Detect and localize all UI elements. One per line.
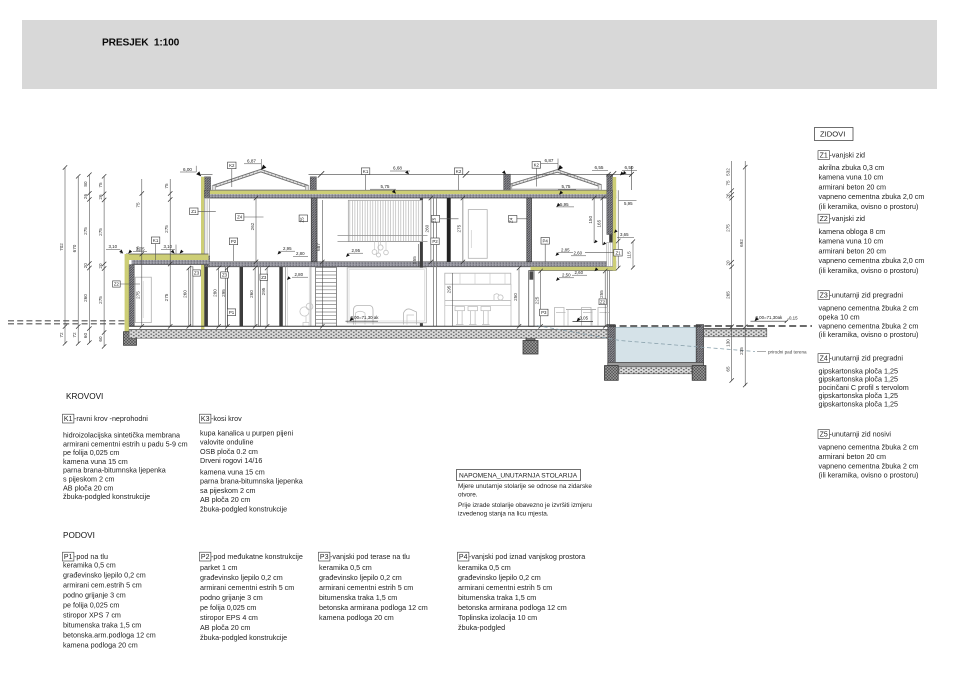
svg-text:pe folija 0,025 cm: pe folija 0,025 cm <box>63 448 119 457</box>
svg-text:stiropor XPS 7 cm: stiropor XPS 7 cm <box>63 611 121 620</box>
svg-text:60: 60 <box>98 336 103 342</box>
svg-text:260: 260 <box>83 294 88 302</box>
svg-text:0,00=71,30ak: 0,00=71,30ak <box>756 315 784 320</box>
svg-text:275: 275 <box>136 291 141 299</box>
svg-text:armirani beton 20 cm: armirani beton 20 cm <box>819 452 887 461</box>
svg-text:keramika 0,5 cm: keramika 0,5 cm <box>458 563 511 572</box>
svg-text:0,00=71,30 ak: 0,00=71,30 ak <box>351 315 380 320</box>
svg-text:5,75: 5,75 <box>562 184 571 189</box>
svg-text:KROVOVI: KROVOVI <box>66 392 103 401</box>
svg-text:Mjere unutarnje stolarije se o: Mjere unutarnje stolarije se odnose na z… <box>458 483 592 490</box>
svg-text:građevinsko ljepilo 0,2 cm: građevinsko ljepilo 0,2 cm <box>200 573 283 582</box>
svg-text:-vanjski pod iznad vanjskog pr: -vanjski pod iznad vanjskog prostora <box>469 552 585 561</box>
svg-text:žbuka-podgled konstrukcije: žbuka-podgled konstrukcije <box>63 492 150 501</box>
svg-text:(ili keramika, ovisno o prosto: (ili keramika, ovisno o prostoru) <box>819 330 919 339</box>
svg-text:PRESJEK 1:100: PRESJEK 1:100 <box>102 38 180 49</box>
svg-text:s pijeskom 2 cm: s pijeskom 2 cm <box>63 475 115 484</box>
svg-text:-vanjski zid: -vanjski zid <box>830 214 866 223</box>
svg-text:5,75: 5,75 <box>381 184 390 189</box>
svg-text:260: 260 <box>425 224 430 232</box>
svg-text:265: 265 <box>726 291 731 299</box>
svg-text:20: 20 <box>98 263 103 269</box>
svg-text:armirani beton 20 cm: armirani beton 20 cm <box>819 182 887 191</box>
svg-text:3,65: 3,65 <box>620 232 629 237</box>
svg-text:2,95: 2,95 <box>283 246 292 251</box>
svg-text:žbuka-podgled konstrukcije: žbuka-podgled konstrukcije <box>200 633 287 642</box>
svg-text:26: 26 <box>83 194 88 200</box>
svg-text:vapneno cementna žbuka 2 cm: vapneno cementna žbuka 2 cm <box>819 443 919 452</box>
svg-text:bitumenska traka 1,5 cm: bitumenska traka 1,5 cm <box>319 593 397 602</box>
svg-text:275: 275 <box>83 227 88 235</box>
svg-text:6,68: 6,68 <box>393 166 402 171</box>
svg-text:vapneno cementna zbuka 2,0 cm: vapneno cementna zbuka 2,0 cm <box>819 256 925 265</box>
svg-text:Z5: Z5 <box>432 217 437 223</box>
svg-text:parna brana-bitumnska ljepenka: parna brana-bitumnska ljepenka <box>200 477 303 486</box>
svg-text:vapneno cementna žbuka 2 cm: vapneno cementna žbuka 2 cm <box>819 321 919 330</box>
svg-text:2,80: 2,80 <box>296 251 305 256</box>
svg-text:2,60: 2,60 <box>575 270 584 275</box>
svg-text:Z3: Z3 <box>820 293 828 300</box>
svg-text:parna brana-bitumnska ljepenka: parna brana-bitumnska ljepenka <box>63 466 166 475</box>
svg-text:3,10: 3,10 <box>164 244 173 249</box>
svg-text:Z3: Z3 <box>261 275 267 280</box>
svg-text:K1: K1 <box>64 416 73 423</box>
svg-text:Z5: Z5 <box>299 217 304 223</box>
svg-text:60: 60 <box>83 333 88 339</box>
svg-text:pe folija 0,025 cm: pe folija 0,025 cm <box>63 601 119 610</box>
svg-text:75: 75 <box>726 180 731 186</box>
svg-text:687: 687 <box>316 243 321 251</box>
svg-text:6,87: 6,87 <box>247 158 256 163</box>
svg-text:532: 532 <box>726 168 731 176</box>
svg-text:Z1: Z1 <box>820 153 828 160</box>
svg-text:-pod međukatne konstrukcije: -pod međukatne konstrukcije <box>211 552 303 561</box>
svg-text:sa pijeskom 2 cm: sa pijeskom 2 cm <box>200 486 256 495</box>
svg-text:295: 295 <box>261 287 266 295</box>
svg-text:bitumenska traka 1,5 cm: bitumenska traka 1,5 cm <box>458 593 536 602</box>
svg-text:stiropor EPS 4 cm: stiropor EPS 4 cm <box>200 613 258 622</box>
svg-text:Z1: Z1 <box>615 250 621 255</box>
svg-text:AB ploča 20 cm: AB ploča 20 cm <box>200 495 250 504</box>
svg-text:5,95: 5,95 <box>560 202 569 207</box>
svg-text:275: 275 <box>98 296 103 304</box>
svg-text:225: 225 <box>534 296 539 304</box>
svg-text:AB ploča 20 cm: AB ploča 20 cm <box>63 483 113 492</box>
svg-text:Z2: Z2 <box>820 216 828 223</box>
svg-text:armirani cem.estrih 5 cm: armirani cem.estrih 5 cm <box>63 581 142 590</box>
svg-text:P2: P2 <box>432 239 438 244</box>
svg-text:130: 130 <box>726 339 731 347</box>
svg-text:P3: P3 <box>541 310 547 315</box>
svg-text:K2: K2 <box>456 169 462 174</box>
svg-text:AB ploča 20 cm: AB ploča 20 cm <box>200 623 250 632</box>
svg-text:betonska armirana podloga 12 c: betonska armirana podloga 12 cm <box>319 603 428 612</box>
svg-text:hidroizolacijska sintetička me: hidroizolacijska sintetička membrana <box>63 431 180 440</box>
svg-text:275: 275 <box>164 293 169 301</box>
svg-text:(ili keramika, ovisno o prosto: (ili keramika, ovisno o prostoru) <box>819 202 919 211</box>
svg-text:prirodni pad terena: prirodni pad terena <box>768 350 807 355</box>
svg-text:K2: K2 <box>229 163 235 168</box>
svg-text:kupa kanalica u purpen pijeni: kupa kanalica u purpen pijeni <box>200 429 294 438</box>
svg-text:Z3: Z3 <box>194 271 200 276</box>
svg-text:80: 80 <box>83 181 88 187</box>
svg-text:vapneno cementna žbuka 2 cm: vapneno cementna žbuka 2 cm <box>819 461 919 470</box>
svg-text:72: 72 <box>72 332 77 338</box>
svg-text:kamena vuna 10 cm: kamena vuna 10 cm <box>819 173 884 182</box>
svg-text:275: 275 <box>457 224 462 232</box>
svg-text:-vanjski pod terase na tlu: -vanjski pod terase na tlu <box>330 552 410 561</box>
svg-text:295: 295 <box>221 289 226 297</box>
svg-text:2,80: 2,80 <box>295 272 304 277</box>
svg-text:-unutarnji zid pregradni: -unutarnji zid pregradni <box>830 291 904 300</box>
svg-text:armirani cementni estrih 5 cm: armirani cementni estrih 5 cm <box>319 583 413 592</box>
svg-text:ZIDOVI: ZIDOVI <box>820 130 845 139</box>
svg-text:otvore.: otvore. <box>458 492 478 499</box>
svg-text:6,55: 6,55 <box>595 165 604 170</box>
svg-text:692: 692 <box>739 239 744 247</box>
svg-text:72: 72 <box>59 332 64 338</box>
svg-text:6,87: 6,87 <box>545 158 554 163</box>
svg-text:K3: K3 <box>201 416 210 423</box>
svg-text:kamena podloga 20 cm: kamena podloga 20 cm <box>63 641 138 650</box>
svg-text:255: 255 <box>599 290 604 298</box>
svg-text:građevinsko ljepilo 0,2 cm: građevinsko ljepilo 0,2 cm <box>458 573 541 582</box>
svg-text:275: 275 <box>726 224 731 232</box>
svg-text:kamena vuna 10 cm: kamena vuna 10 cm <box>819 237 884 246</box>
svg-text:3,10: 3,10 <box>109 244 118 249</box>
svg-text:-unutarnji zid nosivi: -unutarnji zid nosivi <box>830 430 892 439</box>
svg-text:Z1: Z1 <box>191 209 197 214</box>
svg-text:keramika 0,5 cm: keramika 0,5 cm <box>319 563 372 572</box>
svg-text:kamena podloga 20 cm: kamena podloga 20 cm <box>319 613 394 622</box>
svg-text:165: 165 <box>597 219 602 227</box>
svg-text:K1: K1 <box>363 169 369 174</box>
svg-text:-ravni krov -neprohodni: -ravni krov -neprohodni <box>74 414 148 423</box>
svg-text:parket 1 cm: parket 1 cm <box>200 563 238 572</box>
svg-text:2,85: 2,85 <box>561 247 570 252</box>
svg-text:280: 280 <box>212 289 217 297</box>
svg-text:armirani cementni estrih 5 cm: armirani cementni estrih 5 cm <box>458 583 552 592</box>
svg-text:2,95: 2,95 <box>352 248 361 253</box>
svg-text:6,50: 6,50 <box>625 165 634 170</box>
svg-text:betonska armirana podloga 12 c: betonska armirana podloga 12 cm <box>458 603 567 612</box>
svg-text:P3: P3 <box>320 554 329 561</box>
svg-text:opeka 10 cm: opeka 10 cm <box>819 312 860 321</box>
svg-text:pe folija 0,025 cm: pe folija 0,025 cm <box>200 603 256 612</box>
svg-text:3,05: 3,05 <box>136 246 145 251</box>
svg-text:Z5: Z5 <box>820 432 828 439</box>
svg-text:Z4: Z4 <box>237 215 243 220</box>
svg-text:Z4: Z4 <box>820 356 828 363</box>
svg-text:P2: P2 <box>231 239 237 244</box>
svg-text:akrilna zbuka 0,3 cm: akrilna zbuka 0,3 cm <box>819 163 885 172</box>
svg-text:izvedenog stanja na licu mjest: izvedenog stanja na licu mjesta. <box>458 511 549 518</box>
svg-text:kamena obloga 8 cm: kamena obloga 8 cm <box>819 227 886 236</box>
svg-text:295: 295 <box>446 285 451 293</box>
svg-text:-kosi krov: -kosi krov <box>211 414 242 423</box>
svg-text:-0,05: -0,05 <box>578 315 589 320</box>
svg-text:65: 65 <box>726 366 731 372</box>
svg-text:Z2: Z2 <box>600 300 606 305</box>
svg-text:670: 670 <box>72 244 77 252</box>
svg-text:262: 262 <box>250 222 255 230</box>
svg-text:PODOVI: PODOVI <box>63 531 95 540</box>
svg-text:keramika 0,5 cm: keramika 0,5 cm <box>63 561 116 570</box>
svg-text:kamena vuna 15 cm: kamena vuna 15 cm <box>200 468 265 477</box>
svg-text:-0,15: -0,15 <box>788 315 799 320</box>
svg-text:2,50: 2,50 <box>562 273 571 278</box>
svg-text:(ili keramika, ovisno o prosto: (ili keramika, ovisno o prostoru) <box>819 471 919 480</box>
svg-text:P4: P4 <box>543 239 549 244</box>
svg-text:75: 75 <box>164 183 169 189</box>
svg-text:OSB ploča 0.2 cm: OSB ploča 0.2 cm <box>200 447 258 456</box>
svg-text:Toplinska izolacija 10 cm: Toplinska izolacija 10 cm <box>458 613 537 622</box>
svg-text:702: 702 <box>59 243 64 251</box>
svg-text:građevinsko ljepilo 0,2 cm: građevinsko ljepilo 0,2 cm <box>63 571 146 580</box>
svg-text:valovite onduline: valovite onduline <box>200 438 254 447</box>
svg-text:Drveni rogovi 14/16: Drveni rogovi 14/16 <box>200 456 262 465</box>
svg-text:235: 235 <box>739 347 744 355</box>
svg-text:Z2: Z2 <box>114 282 120 287</box>
svg-text:26: 26 <box>98 194 103 200</box>
svg-text:260: 260 <box>249 290 254 298</box>
svg-text:građevinsko ljepilo 0,2 cm: građevinsko ljepilo 0,2 cm <box>319 573 402 582</box>
svg-text:(ili keramika, ovisno o prosto: (ili keramika, ovisno o prostoru) <box>819 266 919 275</box>
svg-text:250: 250 <box>513 293 518 301</box>
svg-text:armirani cementni estrih 5 cm: armirani cementni estrih 5 cm <box>200 583 294 592</box>
svg-text:75: 75 <box>136 202 141 208</box>
svg-text:5,95: 5,95 <box>624 201 633 206</box>
svg-text:K2: K2 <box>534 163 540 168</box>
svg-text:gipskartonska ploča 1,25: gipskartonska ploča 1,25 <box>819 399 899 408</box>
svg-text:-vanjski zid: -vanjski zid <box>830 151 866 160</box>
svg-text:Z3: Z3 <box>222 273 228 278</box>
svg-text:armirani cementni estrih u pad: armirani cementni estrih u padu 5-9 cm <box>63 439 188 448</box>
svg-text:podno grijanje 3 cm: podno grijanje 3 cm <box>200 593 263 602</box>
svg-text:Prije izrade stolarije obavezn: Prije izrade stolarije obavezno je izvrš… <box>458 502 592 509</box>
svg-text:260: 260 <box>183 290 188 298</box>
svg-text:armirani beton 20 cm: armirani beton 20 cm <box>819 246 887 255</box>
svg-text:275: 275 <box>164 225 169 233</box>
svg-text:2,60: 2,60 <box>574 251 583 256</box>
svg-text:Z4: Z4 <box>509 217 514 223</box>
svg-text:P1: P1 <box>229 310 235 315</box>
svg-text:275: 275 <box>98 228 103 236</box>
svg-text:26: 26 <box>726 193 731 199</box>
svg-text:podno grijanje 3 cm: podno grijanje 3 cm <box>63 591 126 600</box>
svg-text:P2: P2 <box>201 554 210 561</box>
svg-text:K1: K1 <box>153 238 159 243</box>
svg-text:NAPOMENA_UNUTARNJA STOLARIJA: NAPOMENA_UNUTARNJA STOLARIJA <box>459 473 578 480</box>
svg-text:20: 20 <box>726 260 731 266</box>
svg-text:-unutarnji zid pregradni: -unutarnji zid pregradni <box>830 354 904 363</box>
svg-text:20: 20 <box>83 263 88 269</box>
svg-text:žbuka-podgled konstrukcije: žbuka-podgled konstrukcije <box>200 504 287 513</box>
svg-text:150: 150 <box>588 216 593 224</box>
svg-text:P4: P4 <box>459 554 468 561</box>
svg-text:115: 115 <box>627 251 632 259</box>
svg-text:bitumenska traka 1,5 cm: bitumenska traka 1,5 cm <box>63 621 141 630</box>
svg-text:75: 75 <box>98 182 103 188</box>
svg-text:555: 555 <box>412 256 417 264</box>
svg-text:vapneno cementna zbuka 2,0 cm: vapneno cementna zbuka 2,0 cm <box>819 192 925 201</box>
svg-text:6,00: 6,00 <box>183 167 192 172</box>
svg-text:kamena vuna 15 cm: kamena vuna 15 cm <box>63 457 128 466</box>
svg-text:betonska.arm.podloga 12 cm: betonska.arm.podloga 12 cm <box>63 631 156 640</box>
svg-text:žbuka-podgled: žbuka-podgled <box>458 623 505 632</box>
svg-text:vapneno cementna žbuka 2 cm: vapneno cementna žbuka 2 cm <box>819 304 919 313</box>
